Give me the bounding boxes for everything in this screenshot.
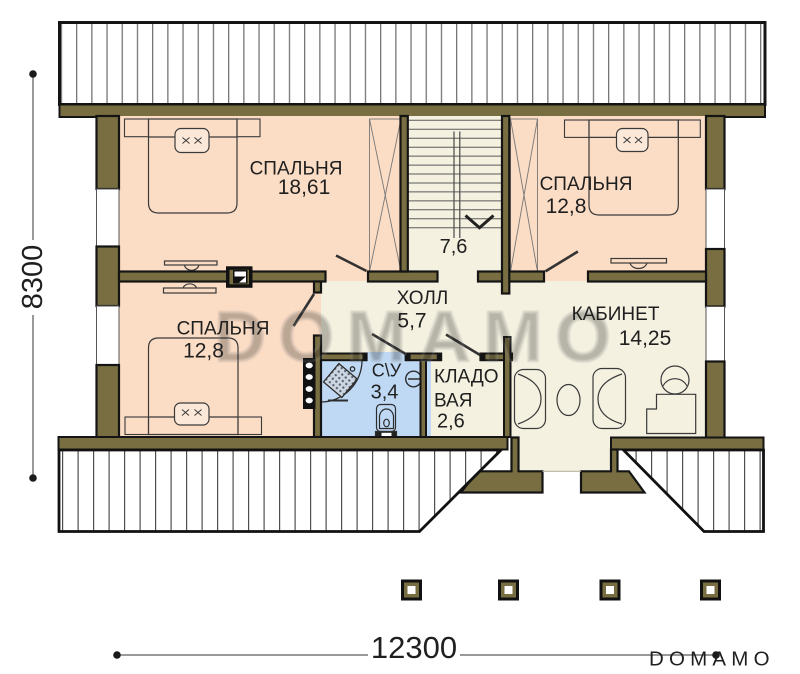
svg-text:8300: 8300 — [17, 245, 49, 310]
svg-text:12300: 12300 — [371, 630, 457, 665]
svg-text:18,61: 18,61 — [278, 176, 331, 199]
svg-text:14,25: 14,25 — [619, 327, 672, 350]
svg-text:3,4: 3,4 — [371, 382, 399, 404]
svg-text:КАБИНЕТ: КАБИНЕТ — [572, 304, 660, 325]
svg-text:ВАЯ: ВАЯ — [434, 391, 472, 412]
svg-text:7,6: 7,6 — [440, 236, 468, 258]
svg-text:КЛАДО: КЛАДО — [434, 367, 499, 388]
svg-text:5,7: 5,7 — [397, 310, 426, 333]
svg-text:12,8: 12,8 — [546, 195, 587, 218]
svg-text:СПАЛЬНЯ: СПАЛЬНЯ — [177, 319, 270, 340]
svg-text:DOMAMO: DOMAMO — [649, 648, 775, 671]
svg-text:ХОЛЛ: ХОЛЛ — [397, 288, 449, 309]
svg-text:С\У: С\У — [372, 361, 402, 381]
svg-text:2,6: 2,6 — [437, 411, 465, 433]
svg-text:12,8: 12,8 — [183, 340, 224, 363]
svg-text:СПАЛЬНЯ: СПАЛЬНЯ — [540, 174, 633, 195]
